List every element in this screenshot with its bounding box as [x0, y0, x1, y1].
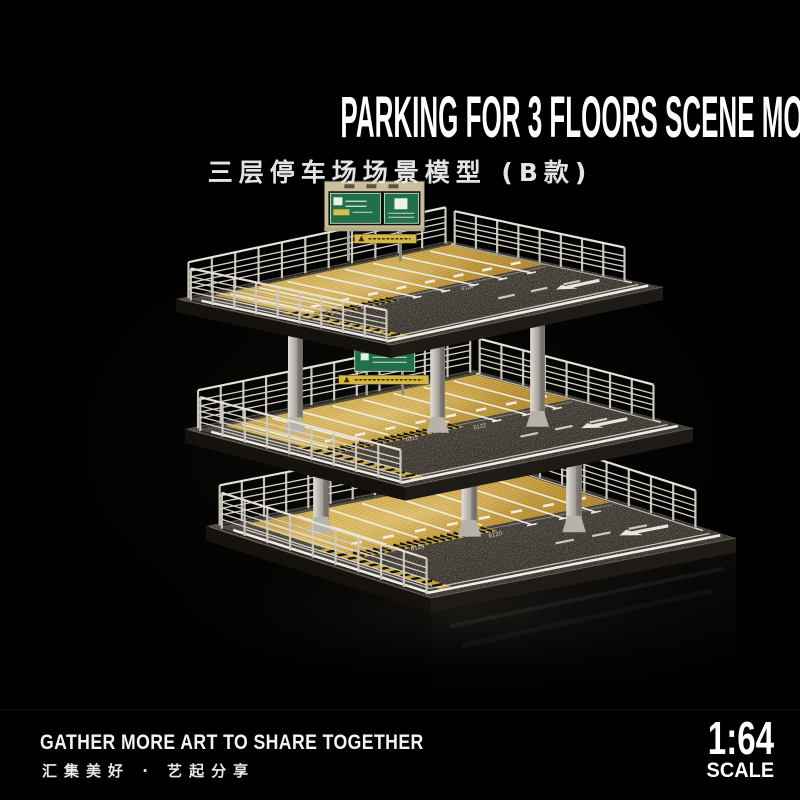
scale-ratio: 1:64 [682, 717, 774, 759]
warning-strip-sign [354, 234, 416, 243]
page-title: PARKING FOR 3 FLOORS SCENE MODEL (SECTIO… [0, 92, 800, 144]
footer-slogan-en-text: GATHER MORE ART TO SHARE TOGETHER [40, 731, 424, 755]
warning-strip-sign [339, 375, 429, 384]
footer-slogan-en: GATHER MORE ART TO SHARE TOGETHER [40, 731, 497, 755]
floor-top-deck: 6120 [176, 181, 663, 358]
page-title-text: PARKING FOR 3 FLOORS SCENE MODEL (SECTIO… [340, 89, 800, 147]
subtitle-cn: 三层停车场场景模型 (B款) [0, 153, 800, 189]
footer-slogan-cn: 汇集美好 · 艺起分享 [42, 760, 255, 781]
poster: 61296120611161226120 PARKING FOR 3 FLOOR… [0, 0, 800, 800]
scale-label: SCALE [682, 759, 774, 782]
scale-badge: 1:64 SCALE [682, 717, 774, 782]
